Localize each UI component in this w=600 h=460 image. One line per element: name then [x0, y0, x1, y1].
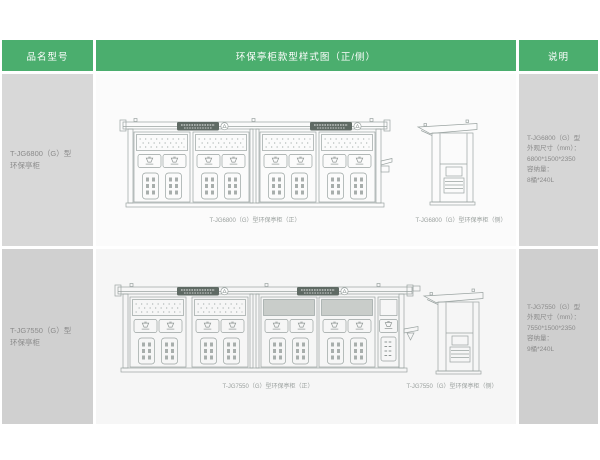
front-view-caption: T-JG6800（G）型环保亭柜（正） [120, 215, 390, 224]
model-name-line2: 环保亭柜 [10, 160, 93, 172]
side-view-drawing-jg6800 [417, 116, 479, 206]
front-view-caption: T-JG7550（G）型环保亭柜（正） [115, 381, 421, 390]
model-cell-jg6800: T-JG6800（G）型 环保亭柜 [2, 74, 93, 246]
kiosk-end-door [378, 297, 399, 367]
spec-line: 外观尺寸（mm）： [527, 313, 598, 323]
model-name-line2: 环保亭柜 [10, 337, 93, 349]
model-cell-jg7550: T-JG7550（G）型 环保亭柜 [2, 249, 93, 424]
spec-cell-jg6800: T-JG6800（G）型 外观尺寸（mm）： 6800*1500*2350 容纳… [519, 74, 598, 246]
front-view-drawing-jg6800 [120, 114, 390, 210]
diagram-cell-jg7550: T-JG7550（G）型环保亭柜（正） T-JG7550（G）型环保亭柜（侧） [96, 249, 516, 424]
model-name-line1: T-JG6800（G）型 [10, 148, 93, 160]
spec-cell-jg7550: T-JG7550（G）型 外观尺寸（mm）： 7550*1500*2350 容纳… [519, 249, 598, 424]
side-chute [381, 159, 392, 166]
header-model-label: 品名型号 [26, 49, 68, 63]
spec-line: T-JG7550（G）型 [527, 303, 598, 313]
spec-line: 容纳量： [527, 334, 598, 344]
side-view-drawing-jg7550 [423, 285, 485, 375]
spec-line: 7550*1500*2350 [527, 324, 598, 334]
spec-table: 品名型号 环保亭柜款型样式图（正/侧） 说明 T-JG6800（G）型 环保亭柜 [2, 40, 598, 424]
kiosk-door [192, 297, 248, 367]
diagram-cell-jg6800: T-JG6800（G）型环保亭柜（正） T-JG6800（G）型环保亭柜（侧） [96, 74, 516, 246]
side-view-caption: T-JG7550（G）型环保亭柜（侧） [392, 381, 512, 390]
spec-line: 6800*1500*2350 [527, 155, 598, 165]
kiosk-door [193, 132, 249, 202]
header-diagram-label: 环保亭柜款型样式图（正/侧） [236, 49, 376, 63]
spec-line: 容纳量： [527, 165, 598, 175]
header-cell-diagram: 环保亭柜款型样式图（正/侧） [96, 40, 516, 71]
spec-line: 外观尺寸（mm）： [527, 144, 598, 154]
kiosk-door [130, 297, 186, 367]
kiosk-door [134, 132, 190, 202]
header-cell-desc: 说明 [519, 40, 598, 71]
header-cell-model: 品名型号 [2, 40, 93, 71]
spec-line: 8桶*240L [527, 176, 598, 186]
side-chute [404, 327, 418, 334]
kiosk-door [319, 132, 375, 202]
spec-line: 9桶*240L [527, 345, 598, 355]
model-name-line1: T-JG7550（G）型 [10, 325, 93, 337]
kiosk-door-screen [261, 297, 317, 367]
kiosk-door [260, 132, 316, 202]
side-view-caption: T-JG6800（G）型环保亭柜（侧） [401, 215, 521, 224]
front-view-drawing-jg7550 [115, 279, 421, 375]
spec-sheet: 品名型号 环保亭柜款型样式图（正/侧） 说明 T-JG6800（G）型 环保亭柜 [0, 0, 600, 460]
spec-line: T-JG6800（G）型 [527, 134, 598, 144]
header-desc-label: 说明 [548, 49, 569, 63]
kiosk-door-screen [319, 297, 375, 367]
